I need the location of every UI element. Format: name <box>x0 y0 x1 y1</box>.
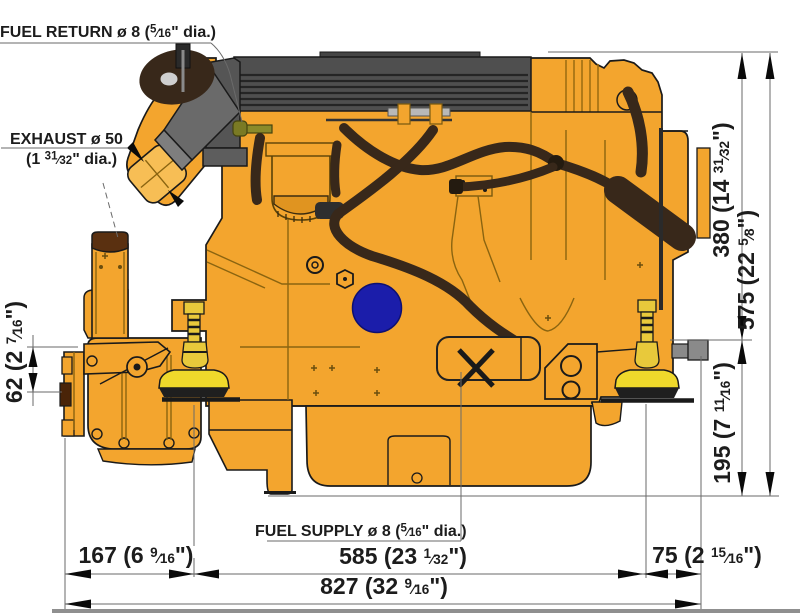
svg-text:195 (7 11⁄16"): 195 (7 11⁄16") <box>709 362 735 484</box>
svg-text:EXHAUST ø 50: EXHAUST ø 50 <box>10 131 123 148</box>
svg-text:575 (22 5⁄8"): 575 (22 5⁄8") <box>733 210 759 330</box>
svg-text:827 (32 9⁄16"): 827 (32 9⁄16") <box>320 573 448 599</box>
svg-text:FUEL RETURN ø 8 (5⁄16" dia.): FUEL RETURN ø 8 (5⁄16" dia.) <box>0 24 216 42</box>
svg-text:(1 31⁄32" dia.): (1 31⁄32" dia.) <box>26 151 117 169</box>
svg-text:62 (2 7⁄16"): 62 (2 7⁄16") <box>1 301 27 403</box>
svg-text:167 (6 9⁄16"): 167 (6 9⁄16") <box>79 542 194 568</box>
svg-text:75 (2 15⁄16"): 75 (2 15⁄16") <box>652 542 762 568</box>
svg-text:585 (23 1⁄32"): 585 (23 1⁄32") <box>339 543 467 569</box>
svg-text:FUEL SUPPLY ø 8 (5⁄16" dia.): FUEL SUPPLY ø 8 (5⁄16" dia.) <box>255 523 467 541</box>
